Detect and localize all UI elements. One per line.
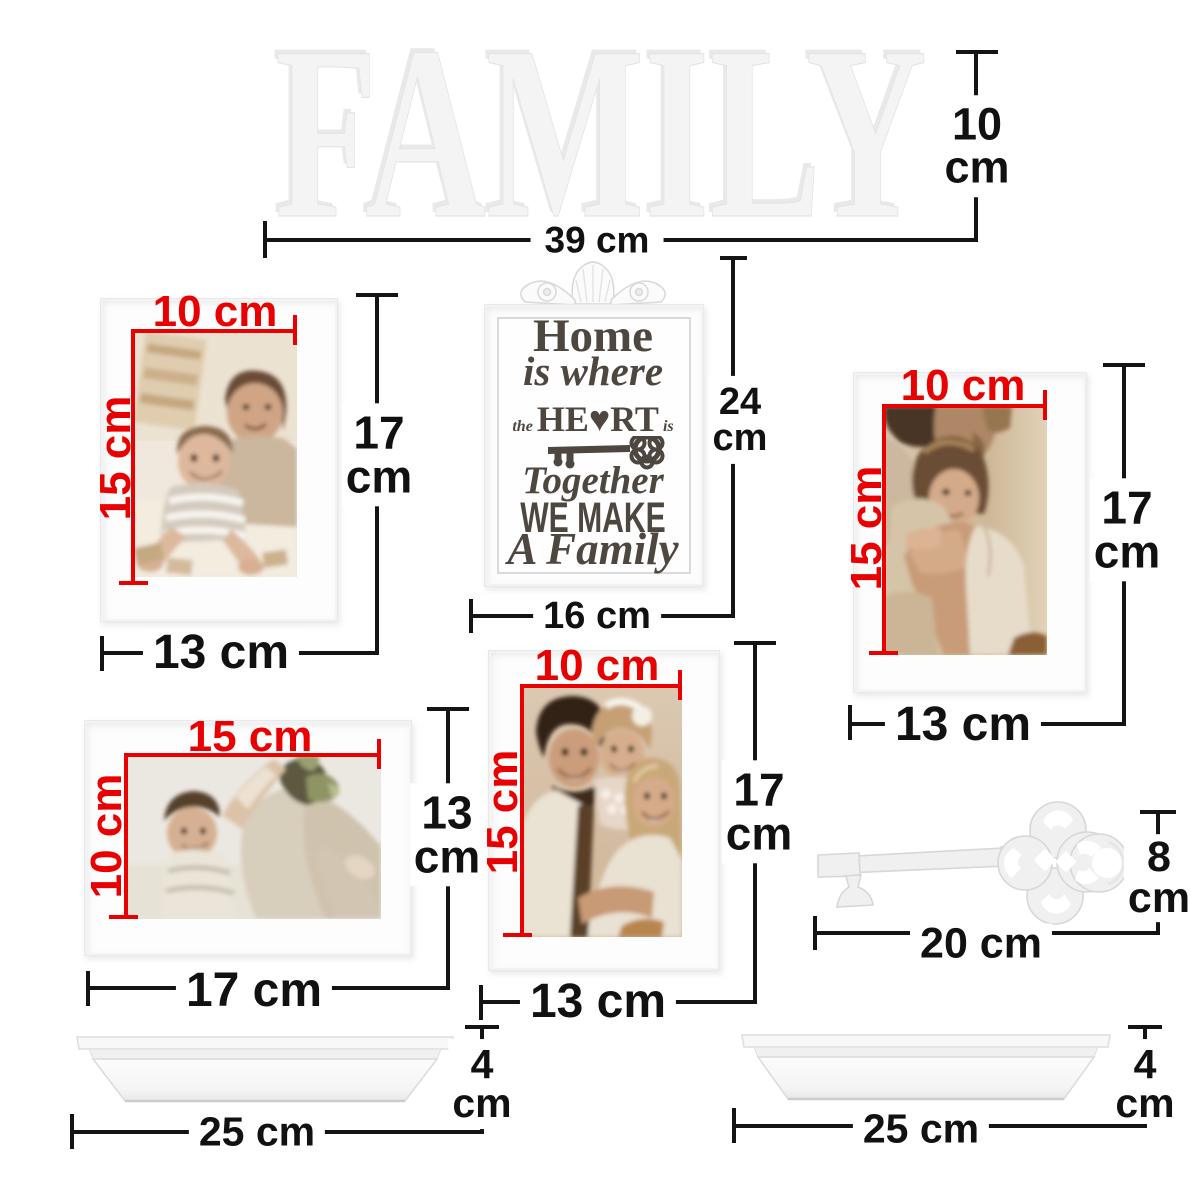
svg-text:FAMILY: FAMILY <box>275 30 927 230</box>
